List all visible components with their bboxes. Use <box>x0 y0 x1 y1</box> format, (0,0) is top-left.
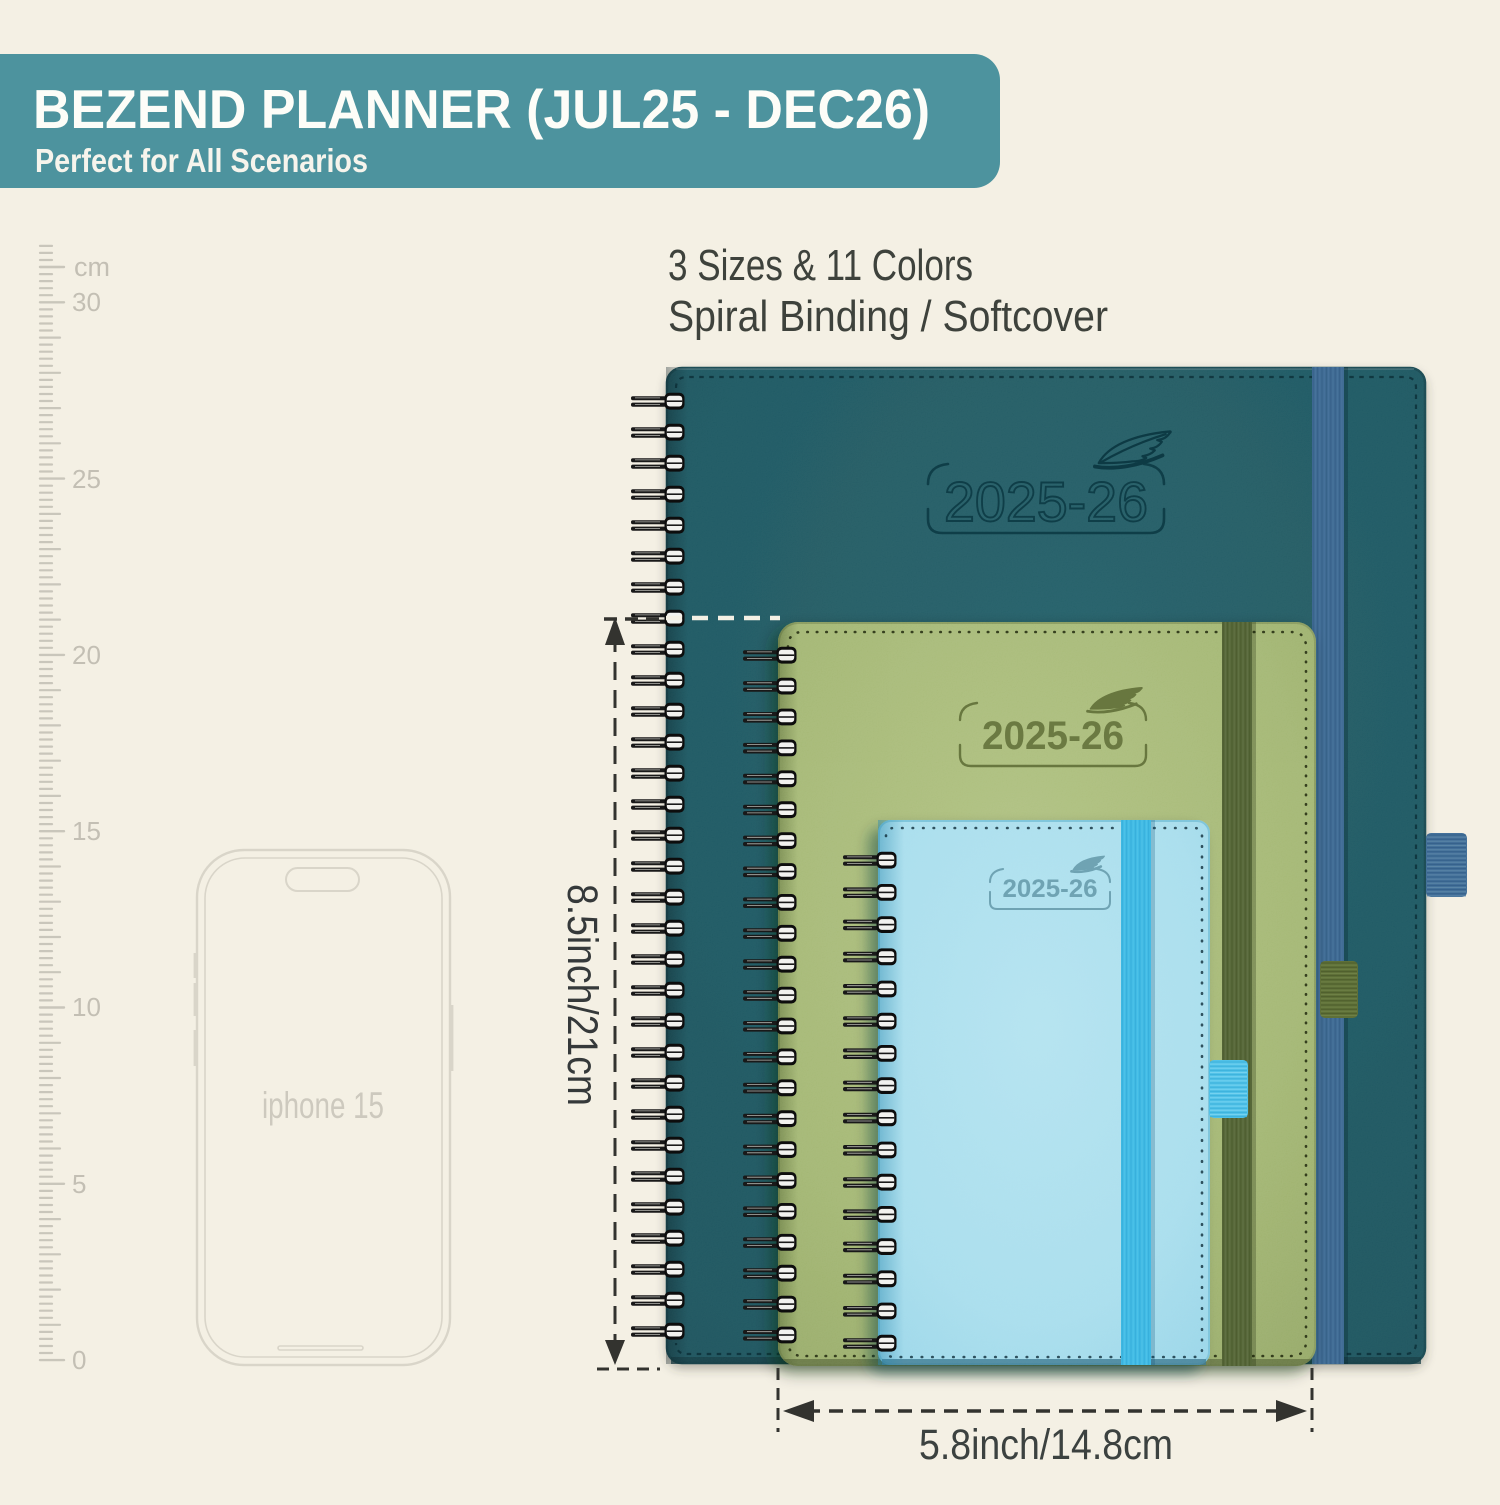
svg-text:iphone 15: iphone 15 <box>262 1085 384 1126</box>
svg-text:Perfect for All Scenarios: Perfect for All Scenarios <box>35 142 368 179</box>
svg-text:3 Sizes & 11 Colors: 3 Sizes & 11 Colors <box>668 241 973 290</box>
svg-text:15: 15 <box>72 816 101 846</box>
svg-text:10: 10 <box>72 992 101 1022</box>
svg-text:Spiral Binding / Softcover: Spiral Binding / Softcover <box>668 292 1108 341</box>
svg-text:2025-26: 2025-26 <box>982 714 1124 758</box>
svg-text:5.8inch/14.8cm: 5.8inch/14.8cm <box>919 1421 1173 1469</box>
svg-text:BEZEND PLANNER (JUL25 - DEC26): BEZEND PLANNER (JUL25 - DEC26) <box>33 78 930 140</box>
svg-text:8.5inch/21cm: 8.5inch/21cm <box>558 884 606 1106</box>
svg-text:cm: cm <box>74 252 110 282</box>
svg-text:0: 0 <box>72 1345 86 1375</box>
svg-text:5: 5 <box>72 1169 86 1199</box>
svg-text:25: 25 <box>72 464 101 494</box>
svg-text:20: 20 <box>72 640 101 670</box>
svg-text:2025-26: 2025-26 <box>944 470 1148 533</box>
svg-text:30: 30 <box>72 287 101 317</box>
svg-text:2025-26: 2025-26 <box>1003 875 1098 903</box>
